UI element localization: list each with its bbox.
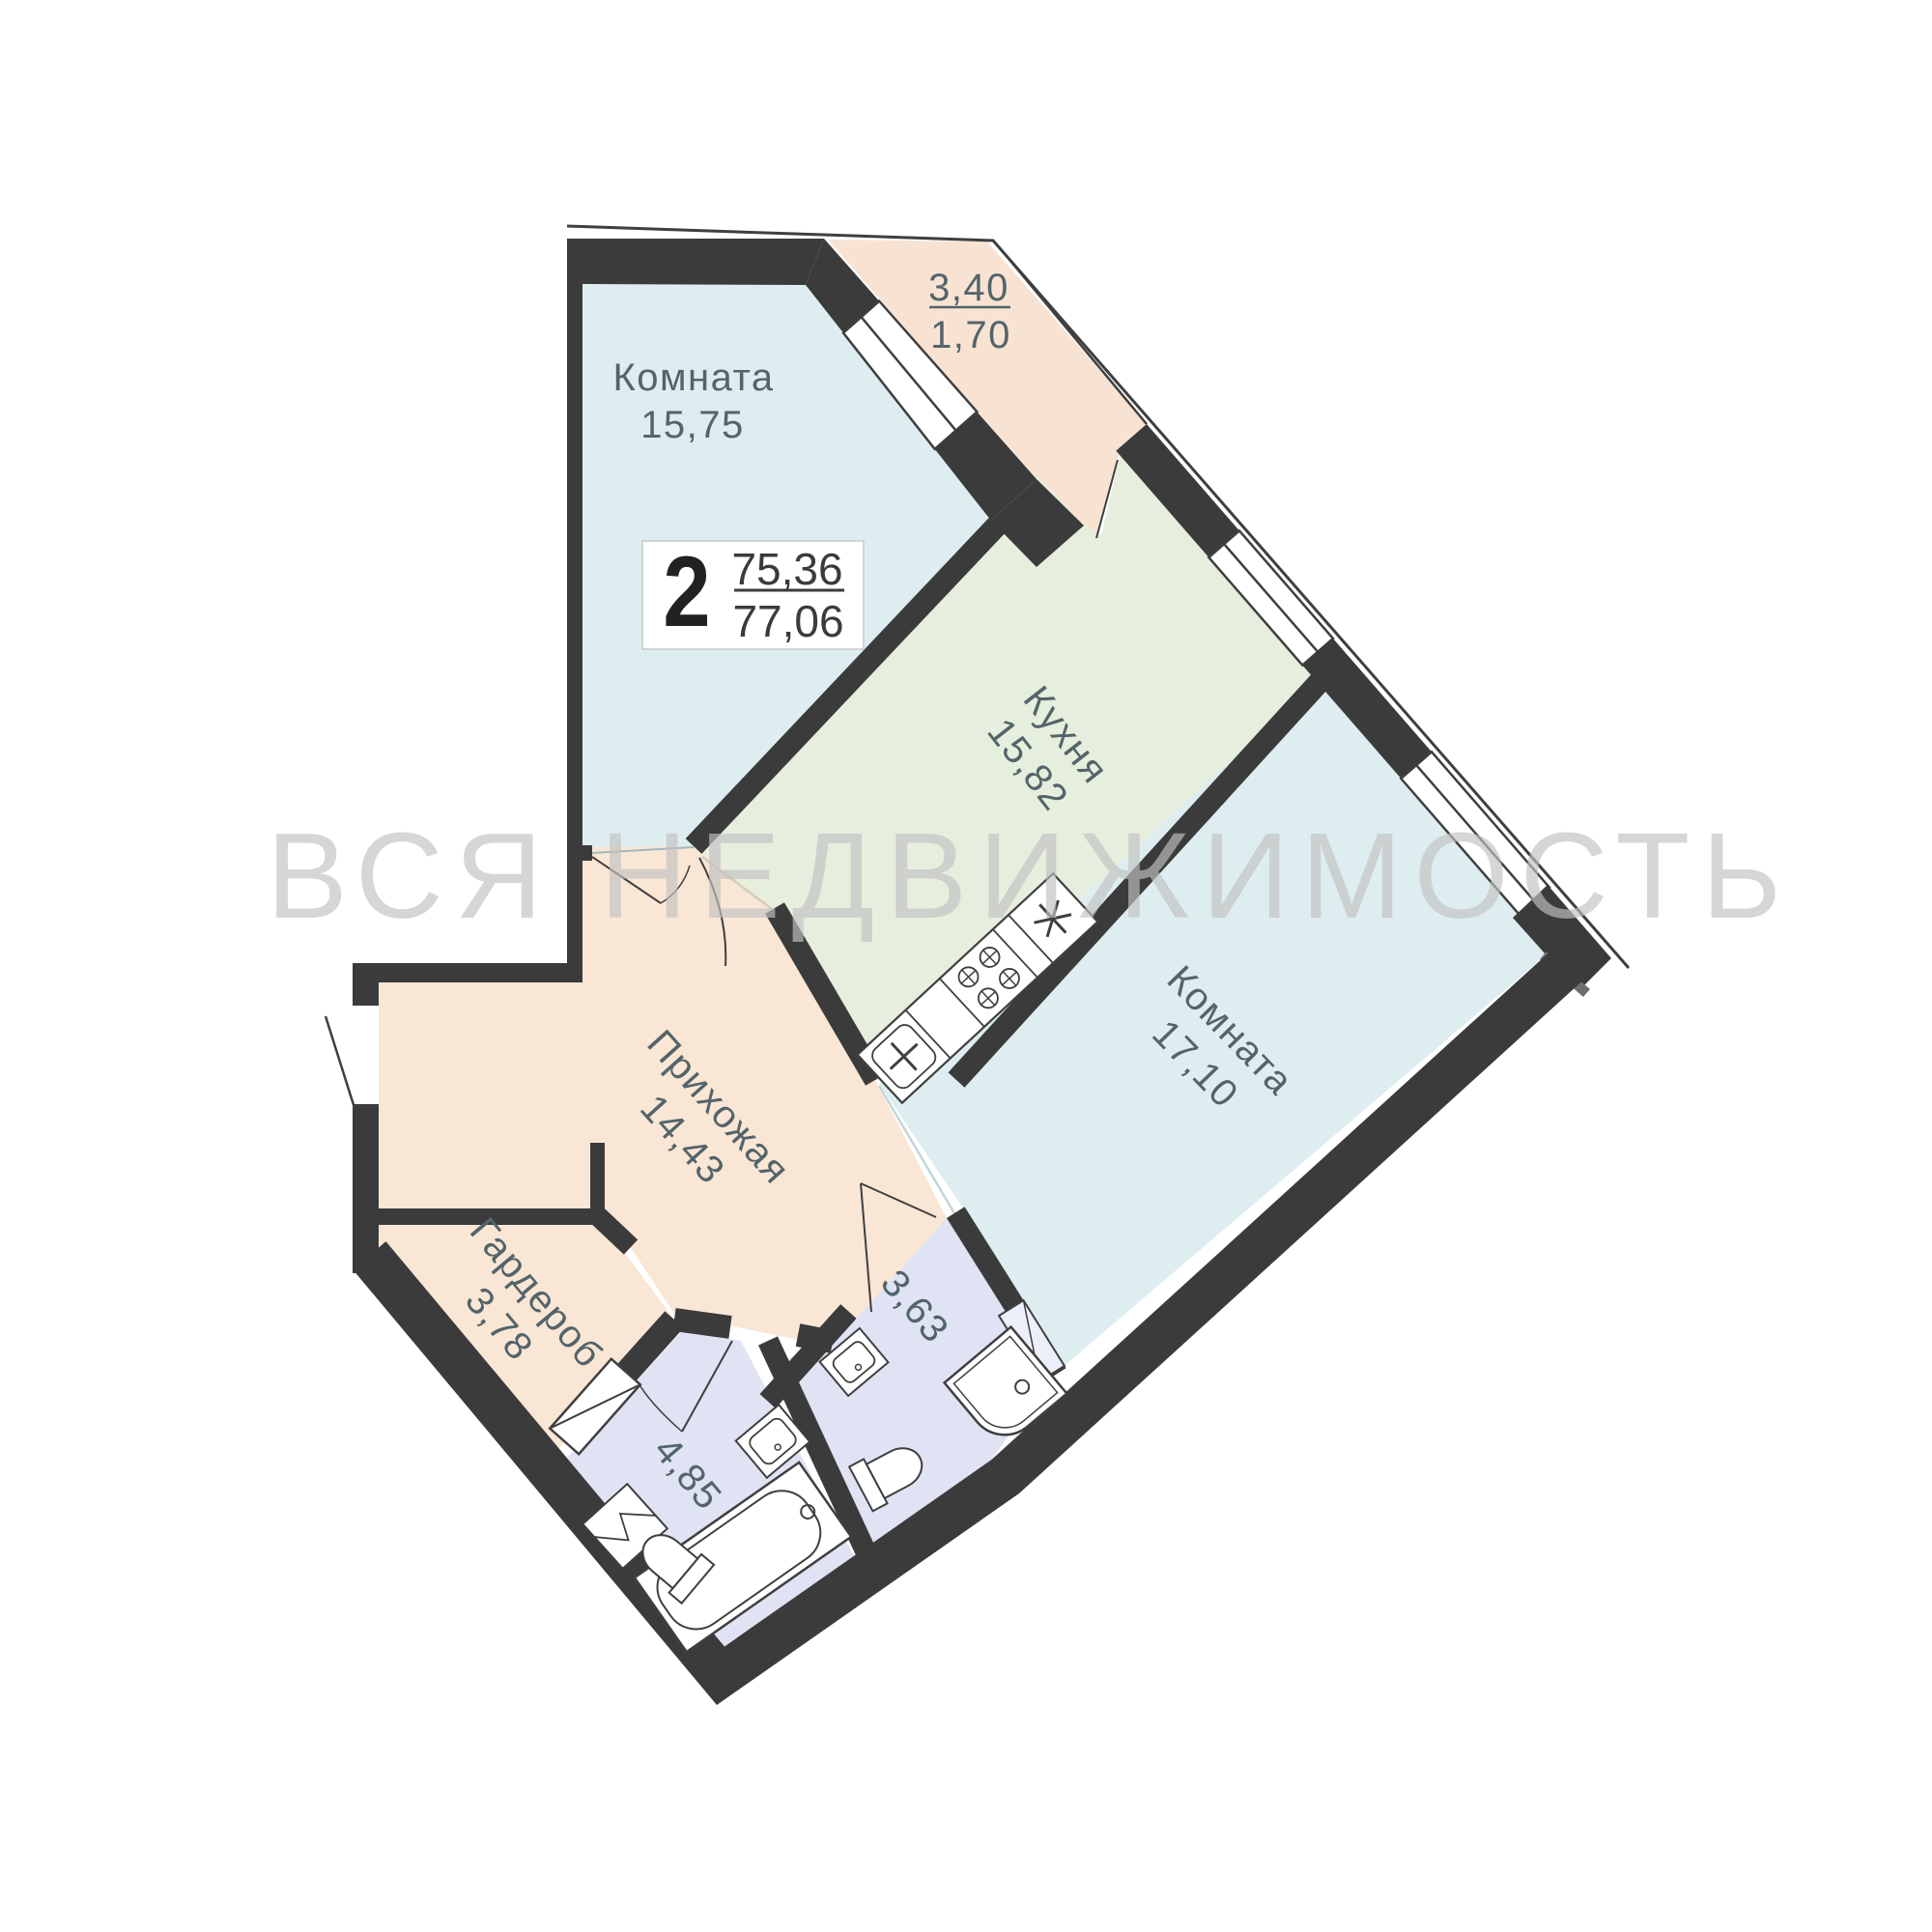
svg-text:Комната: Комната — [612, 356, 774, 399]
svg-text:15,75: 15,75 — [640, 404, 745, 446]
svg-text:3,40: 3,40 — [928, 267, 1009, 309]
svg-text:2: 2 — [663, 536, 710, 647]
svg-text:1,70: 1,70 — [930, 314, 1011, 356]
svg-text:75,36: 75,36 — [731, 544, 842, 594]
svg-text:ВСЯ НЕДВИЖИМОСТЬ: ВСЯ НЕДВИЖИМОСТЬ — [267, 808, 1793, 944]
svg-text:77,06: 77,06 — [732, 596, 843, 646]
